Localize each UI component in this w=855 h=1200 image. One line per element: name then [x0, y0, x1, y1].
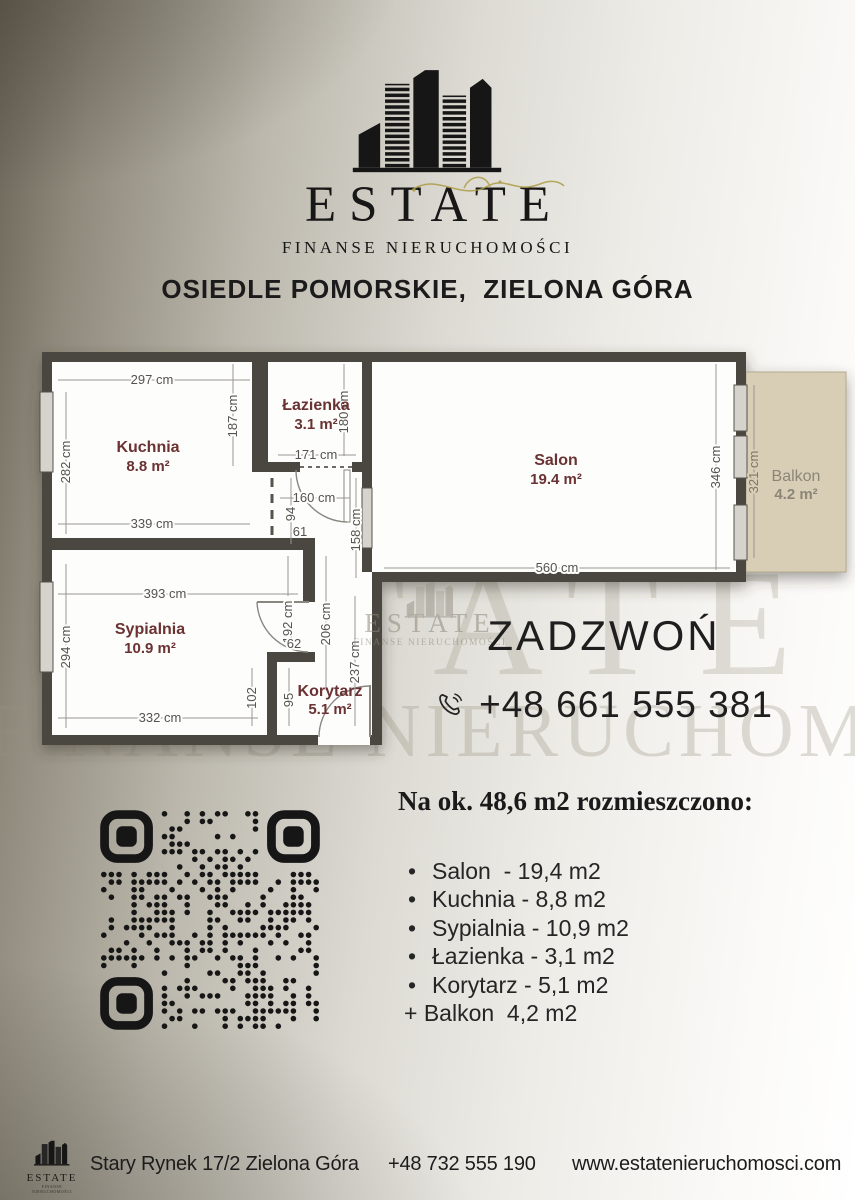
bullet-icon [398, 857, 432, 885]
footer-logo-tagline: FINANSE NIERUCHOMOŚCI [22, 1184, 82, 1194]
dim-hall-206: 206 cm [318, 603, 333, 646]
dim-hall-width: 160 cm [293, 490, 336, 505]
dim-salon-bottom: 560 cm [536, 560, 579, 575]
bullet-icon [398, 942, 432, 970]
dim-kuchnia-top: 297 cm [131, 372, 174, 387]
list-item: Sypialnia - 10,9 m2 [398, 914, 828, 942]
dim-hall-94: 94 [283, 507, 298, 521]
dim-sypialnia-bottom: 332 cm [139, 710, 182, 725]
qr-code [100, 810, 320, 1032]
dim-sypialnia-left: 294 cm [58, 626, 73, 669]
logo-flourish-icon [408, 146, 568, 206]
balkon-area [746, 372, 846, 572]
footer-website: www.estatenieruchomosci.com [572, 1153, 841, 1176]
list-item: Łazienka - 3,1 m2 [398, 942, 828, 970]
list-item: Kuchnia - 8,8 m2 [398, 885, 828, 913]
estate-logo-tagline: FINANSE NIERUCHOMOŚCI [0, 238, 855, 258]
dim-balkon-side: 321 cm [746, 451, 761, 494]
dim-hall-158: 158 cm [348, 509, 363, 552]
room-sypialnia-area: 10.9 m² [124, 640, 176, 657]
footer-logo: ESTATE FINANSE NIERUCHOMOŚCI [22, 1138, 82, 1194]
flyer-page: ESTATE FINANSE NIERUCHOMOŚCI ESTATE FINA… [0, 0, 855, 1200]
footer-logo-buildings-icon [31, 1138, 73, 1166]
dim-syp-102: 102 [244, 687, 259, 709]
list-item: Korytarz - 5,1 m2 [398, 971, 828, 999]
dim-lazienka-bottom: 171 cm [295, 447, 338, 462]
room-kuchnia-area: 8.8 m² [126, 458, 169, 475]
room-korytarz-name: Korytarz [298, 683, 363, 700]
room-balkon-name: Balkon [772, 468, 821, 485]
footer-phone: +48 732 555 190 [388, 1153, 536, 1176]
dim-kuchnia-left: 282 cm [58, 441, 73, 484]
area-summary: Na ok. 48,6 m2 rozmieszczono: Salon - 19… [398, 786, 828, 1027]
call-to-action: ZADZWOŃ [404, 612, 804, 660]
summary-heading: Na ok. 48,6 m2 rozmieszczono: [398, 786, 828, 817]
bullet-icon [398, 914, 432, 942]
list-item: Salon - 19,4 m2 [398, 857, 828, 885]
list-item-label: Korytarz - 5,1 m2 [432, 971, 608, 999]
dim-salon-side: 346 cm [708, 446, 723, 489]
room-korytarz-area: 5.1 m² [308, 701, 351, 718]
balkon-extra-line: + Balkon 4,2 m2 [398, 999, 828, 1027]
footer-logo-wordmark: ESTATE [22, 1172, 82, 1184]
room-sypialnia-name: Sypialnia [115, 621, 185, 638]
dim-syp-192: 192 cm [280, 601, 295, 644]
dim-sypialnia-top: 393 cm [144, 586, 187, 601]
room-lazienka-name: Łazienka [282, 397, 350, 414]
list-item-label: Sypialnia - 10,9 m2 [432, 914, 629, 942]
room-balkon-area: 4.2 m² [774, 486, 817, 503]
contact-block: ZADZWOŃ +48 661 555 381 [404, 612, 804, 726]
dim-hall-95: 95 [281, 693, 296, 707]
room-salon-name: Salon [534, 452, 578, 469]
bullet-icon [398, 971, 432, 999]
door-icons [257, 467, 370, 737]
room-lazienka-area: 3.1 m² [294, 416, 337, 433]
listing-title: OSIEDLE POMORSKIE, ZIELONA GÓRA [0, 274, 855, 305]
dim-hall-61: 61 [293, 524, 307, 539]
bullet-icon [398, 885, 432, 913]
dim-hall-237: 237 cm [347, 641, 362, 684]
footer-address: Stary Rynek 17/2 Zielona Góra [90, 1153, 359, 1176]
dim-door-62: 62 [287, 636, 301, 651]
phone-icon [435, 690, 465, 720]
list-item-label: Salon - 19,4 m2 [432, 857, 601, 885]
dim-kuchnia-bottom: 339 cm [131, 516, 174, 531]
summary-list: Salon - 19,4 m2 Kuchnia - 8,8 m2 Sypialn… [398, 857, 828, 1027]
contact-phone-number: +48 661 555 381 [479, 684, 773, 726]
room-kuchnia-name: Kuchnia [116, 439, 179, 456]
room-salon-area: 19.4 m² [530, 471, 582, 488]
dim-lazienka-side: 180 cm [336, 391, 351, 434]
dim-kuchnia-inner: 187 cm [225, 395, 240, 438]
list-item-label: Łazienka - 3,1 m2 [432, 942, 615, 970]
list-item-label: Kuchnia - 8,8 m2 [432, 885, 606, 913]
footer: ESTATE FINANSE NIERUCHOMOŚCI Stary Rynek… [0, 1122, 855, 1200]
